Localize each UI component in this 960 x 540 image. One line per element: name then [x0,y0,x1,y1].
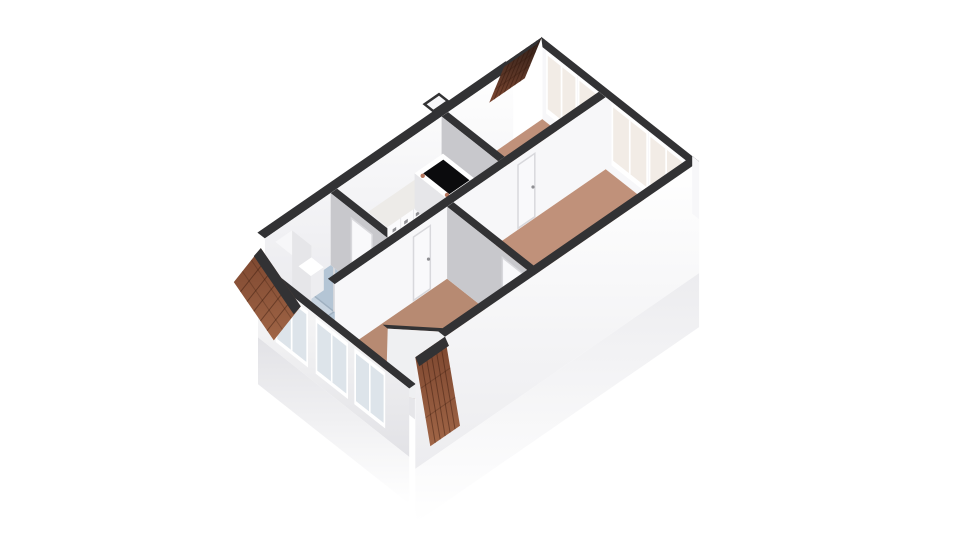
floorplan-canvas [0,0,960,540]
window-mullion-sw-3 [369,364,371,413]
window-mullion-sw-2 [331,334,333,383]
floorplan-3d-render [0,0,960,540]
kitchen-door-handle [427,258,430,261]
window-mullion-living-1 [629,120,631,175]
kitchen-door [414,226,431,301]
bedroom-door-handle [531,185,534,188]
floorplan-layers [234,37,699,523]
bedroom-door [518,153,535,228]
window-mullion-bedroom-1 [561,66,563,121]
right-corner-face [692,156,699,219]
cooktop-knob-1 [421,174,425,178]
